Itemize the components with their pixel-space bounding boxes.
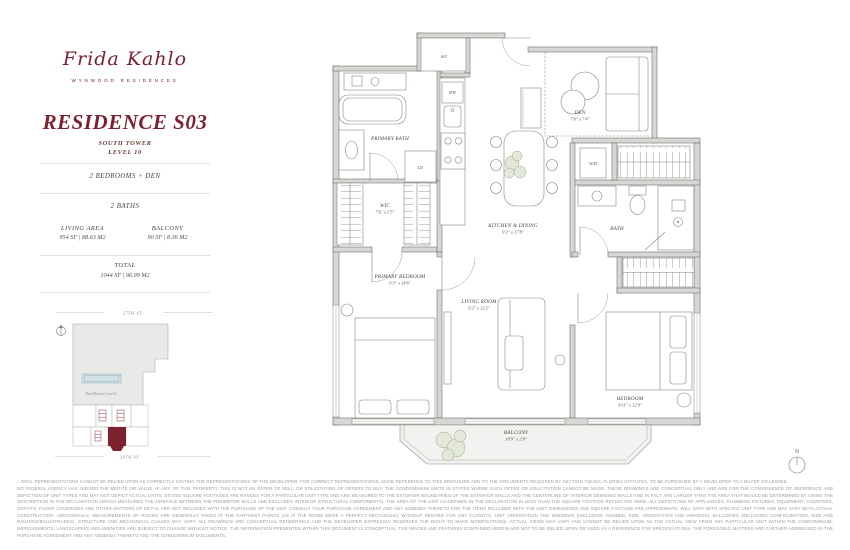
ac-label: A/C — [440, 54, 448, 59]
primary-bedroom-label: PRIMARY BEDROOM — [374, 274, 426, 280]
kitchen-dining-dims: 9'2" x 17'8" — [502, 230, 524, 235]
bath-label: BATH — [610, 226, 624, 232]
wd-label: W/D — [589, 161, 598, 166]
keyplan-units — [73, 405, 148, 451]
wic-label: WIC — [380, 203, 390, 209]
disclaimer-text-2: NO FEDERAL AGENCY HAS JUDGED THE MERITS … — [17, 486, 833, 540]
legal-disclaimer: ⌂ORAL REPRESENTATIONS CANNOT BE RELIED U… — [17, 479, 833, 539]
pool-deck-label: Pool Deck on Level 4 — [85, 392, 117, 396]
living-room-label: LIVING ROOM — [460, 299, 497, 305]
keyplan-compass-icon — [57, 325, 66, 336]
primary-bath-label: PRIMARY BATH — [370, 136, 409, 142]
plan-canvas: 27TH ST. Pool Deck on Level 4 — [0, 0, 850, 550]
street-bottom-label: 26TH ST. — [120, 455, 140, 460]
den-dims: 7'6" x 7'4" — [570, 117, 589, 122]
floor-plan: A/C DW LN W/D PRIMARY BATH WIC 7'6" x 5'… — [333, 33, 700, 464]
primary-bedroom-dims: 9'3" x 14'6" — [389, 281, 411, 286]
street-top-label: 27TH ST. — [123, 311, 143, 316]
dining-set — [491, 131, 558, 206]
balcony-dims: 18'9" x 2'9" — [505, 437, 527, 442]
kitchen-dining-label: KITCHEN & DINING — [487, 223, 538, 229]
bedroom-dims: 9'11" x 12'9" — [618, 403, 642, 408]
disclaimer-line-1: ⌂ORAL REPRESENTATIONS CANNOT BE RELIED U… — [17, 479, 833, 486]
bedroom-closet — [623, 258, 694, 287]
den-label: DEN — [574, 110, 586, 116]
living-room-dims: 9'2" x 12'2" — [468, 306, 490, 311]
equal-housing-icon: ⌂ — [17, 479, 20, 486]
wic-dims: 7'6" x 5'5" — [375, 210, 394, 215]
bedroom-label: BEDROOM — [617, 396, 644, 402]
primary-bedroom-furniture — [341, 304, 435, 418]
bath-fixtures — [578, 186, 694, 250]
balcony-label: BALCONY — [504, 430, 529, 436]
key-plan: 27TH ST. Pool Deck on Level 4 — [55, 311, 213, 460]
highlighted-unit — [108, 427, 126, 446]
north-compass-icon: N — [789, 449, 805, 473]
disclaimer-text-1: ORAL REPRESENTATIONS CANNOT BE RELIED UP… — [21, 479, 788, 484]
dw-label: DW — [448, 90, 456, 95]
living-room-furniture — [444, 298, 565, 390]
bedroom-furniture — [606, 312, 692, 407]
brochure-page: Frida Kahlo WYNWOOD RESIDENCES RESIDENCE… — [0, 0, 850, 550]
north-label: N — [795, 449, 799, 455]
